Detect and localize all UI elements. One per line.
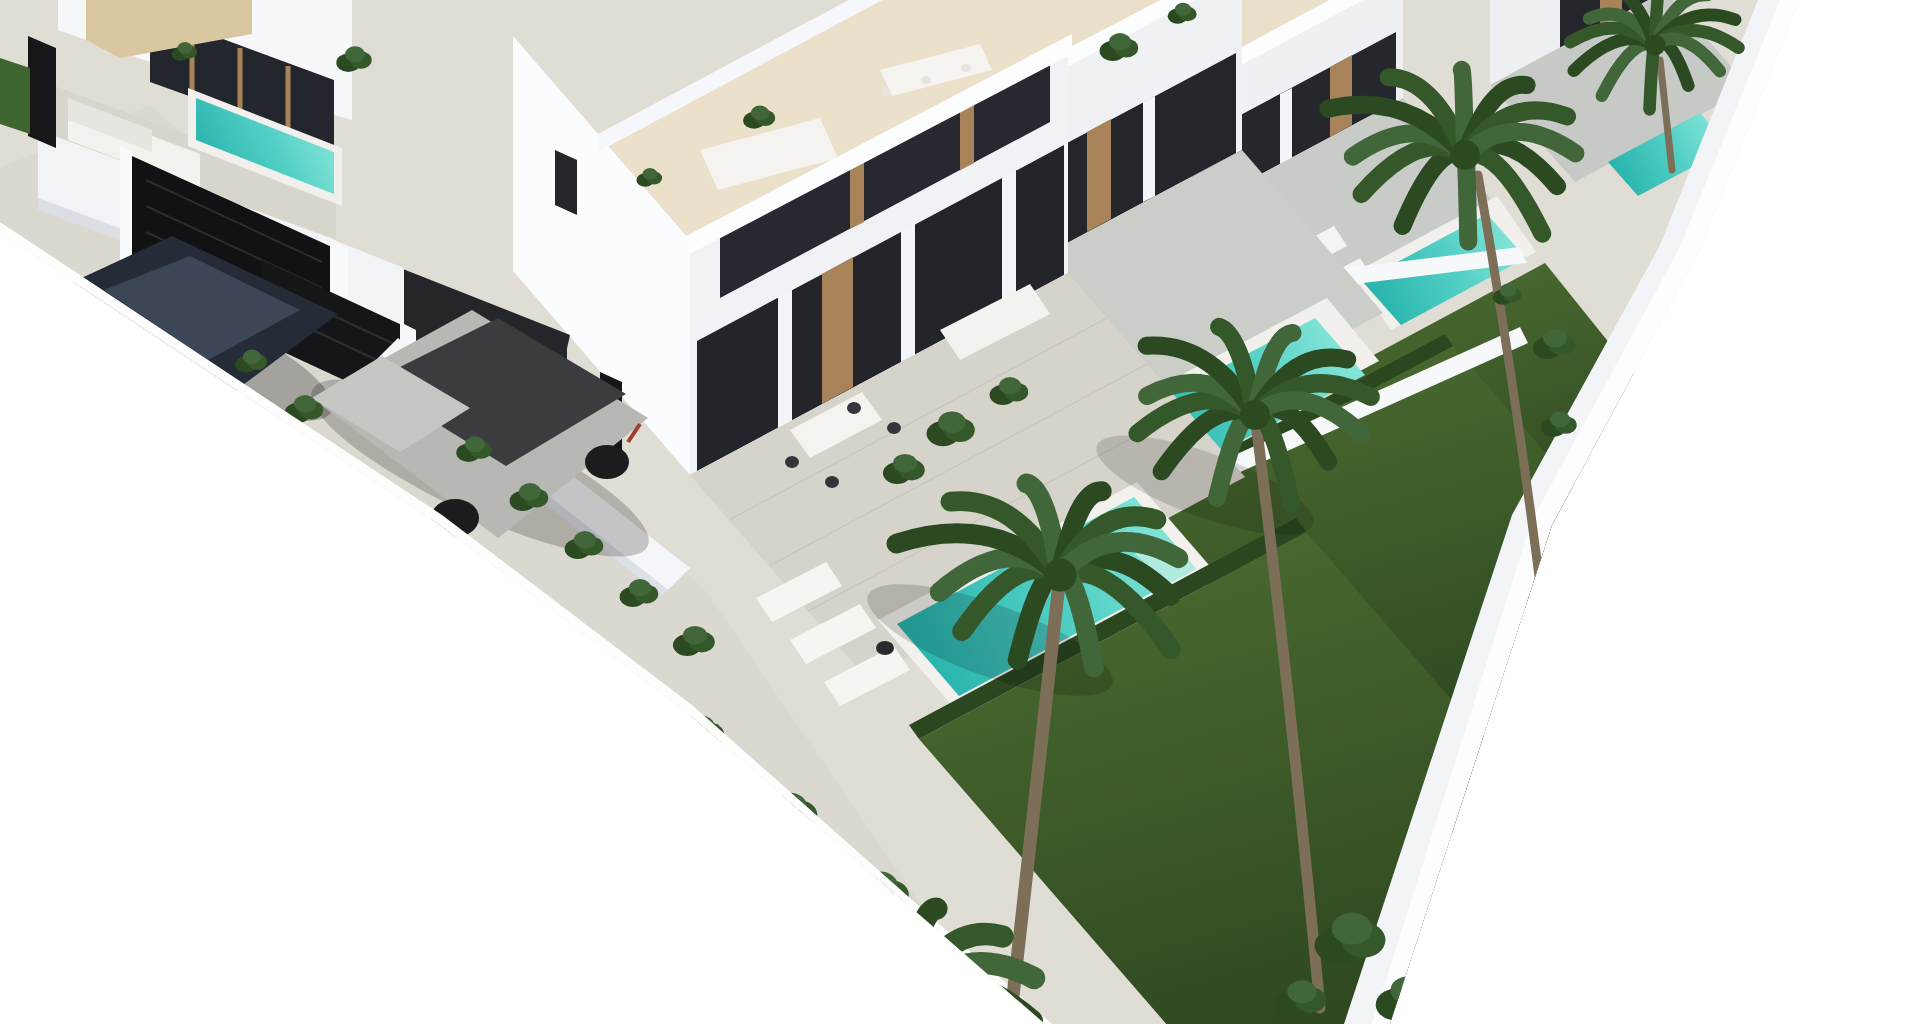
suv-wheel (585, 445, 629, 479)
villa4-wood-door (1330, 55, 1352, 137)
villa-development-render (0, 0, 1920, 1024)
villa2-pier (901, 223, 915, 362)
dining-chair (887, 422, 901, 434)
scene-svg (0, 0, 1920, 1024)
villa3-wood-door (1087, 119, 1111, 232)
villa2-pier (778, 289, 792, 428)
villa2-pier (1002, 169, 1016, 308)
dining-chair (825, 476, 839, 488)
roof-chair (881, 88, 891, 96)
render-canvas (0, 0, 1920, 1024)
side-table (876, 641, 894, 655)
roof-chair (921, 76, 931, 84)
corner-door (28, 36, 56, 148)
roof-chair (961, 64, 971, 72)
dining-chair (785, 456, 799, 468)
villa2-side-window (555, 150, 577, 215)
dining-chair (847, 402, 861, 414)
corner-grass (0, 58, 30, 134)
villa3-pier (1143, 96, 1155, 202)
villa2-wood-door (822, 257, 853, 404)
villa4-pier (1280, 88, 1292, 164)
